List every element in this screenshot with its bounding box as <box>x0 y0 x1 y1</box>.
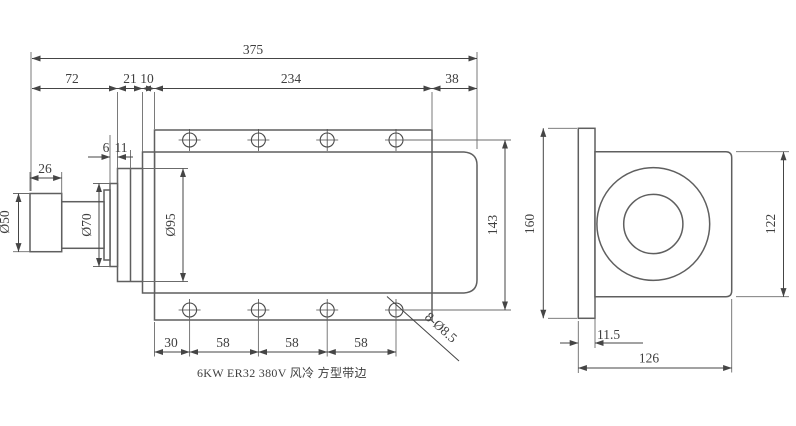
dim-label: 21 <box>123 71 137 86</box>
dim-label: 11.5 <box>597 327 620 342</box>
dim-label: Ø70 <box>79 213 94 236</box>
front-cap <box>143 152 155 293</box>
dim-flange-height: 160 <box>522 128 577 318</box>
dim-label: 72 <box>65 71 79 86</box>
dim-label: 375 <box>243 42 264 57</box>
dim-body-height: 122 <box>736 152 789 297</box>
drawing-canvas: 375 72 21 10 234 38 26 <box>0 0 796 426</box>
collet-nut <box>30 194 62 252</box>
flange-plate <box>155 130 433 320</box>
spindle-dimension-drawing: 375 72 21 10 234 38 26 <box>0 0 796 426</box>
drawing-caption: 6KW ER32 380V 风冷 方型带边 <box>197 365 367 380</box>
dim-label: 38 <box>445 71 459 86</box>
dim-label: 143 <box>485 215 500 236</box>
dim-label: 10 <box>140 71 154 86</box>
dim-label: 234 <box>281 71 302 86</box>
dim-nut-diameter: Ø50 <box>0 194 30 252</box>
side-body <box>595 152 732 297</box>
dim-label: 58 <box>285 335 299 350</box>
side-flange-plate <box>578 128 595 318</box>
dim-flange-thickness: 11.5 <box>560 299 643 373</box>
dim-label: 11 <box>115 140 128 155</box>
shaft-disc <box>110 184 118 267</box>
front-view: 375 72 21 10 234 38 26 <box>0 42 511 380</box>
dim-label: 122 <box>763 214 778 234</box>
dim-label: 160 <box>522 214 537 235</box>
side-view: 160 122 11.5 126 <box>522 128 789 373</box>
hole-callout-label: 8-Ø8.5 <box>422 309 460 346</box>
shaft-collar <box>104 190 110 260</box>
dim-label: 30 <box>164 335 178 350</box>
dim-label: 6 <box>103 140 110 155</box>
dim-label: 58 <box>354 335 368 350</box>
dim-label: 58 <box>216 335 230 350</box>
dim-label: Ø50 <box>0 210 12 233</box>
dim-label: 126 <box>639 351 660 366</box>
dim-label: Ø95 <box>163 213 178 236</box>
dim-label: 26 <box>38 161 52 176</box>
